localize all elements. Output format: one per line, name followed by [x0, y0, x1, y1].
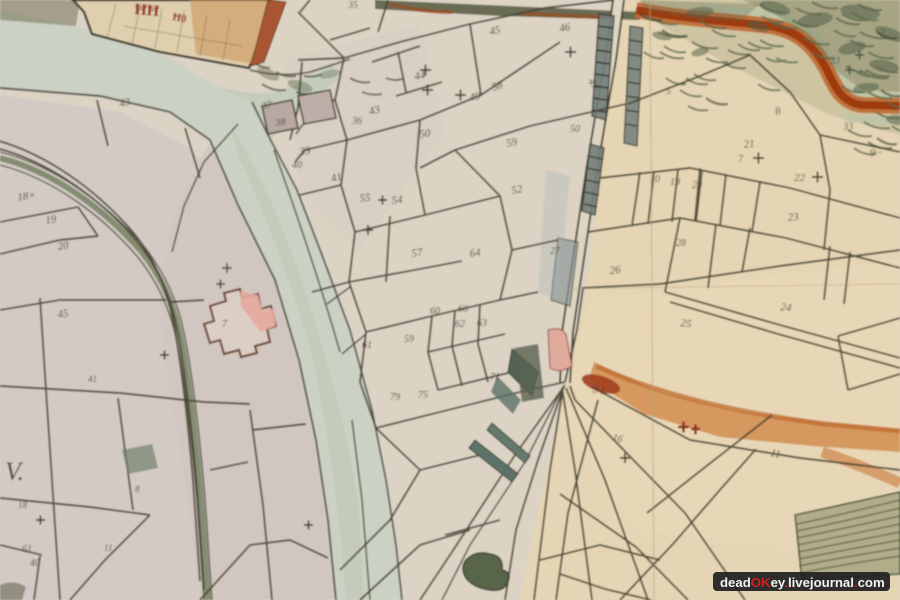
- svg-text:45: 45: [57, 307, 70, 320]
- svg-text:61: 61: [22, 544, 32, 555]
- svg-text:64: 64: [469, 246, 482, 259]
- svg-text:66: 66: [458, 304, 468, 315]
- svg-text:11: 11: [104, 543, 112, 553]
- svg-text:28: 28: [676, 238, 686, 249]
- svg-text:36: 36: [351, 116, 362, 127]
- svg-text:Ħ0: Ħ0: [171, 11, 187, 25]
- svg-text:V.: V.: [5, 457, 24, 486]
- svg-text:50: 50: [570, 124, 580, 135]
- svg-text:23: 23: [787, 211, 800, 224]
- svg-text:20: 20: [692, 180, 702, 191]
- svg-text:35: 35: [347, 0, 358, 11]
- svg-text:11: 11: [769, 447, 781, 461]
- svg-text:21: 21: [743, 138, 755, 151]
- svg-text:55: 55: [359, 192, 372, 205]
- svg-text:40: 40: [292, 160, 302, 171]
- svg-text:57: 57: [411, 246, 424, 259]
- svg-text:18: 18: [18, 500, 28, 510]
- svg-text:deadOKey.livejournal.com: deadOKey.livejournal.com: [720, 575, 885, 590]
- svg-text:33: 33: [829, 56, 840, 67]
- svg-text:40: 40: [30, 558, 40, 569]
- svg-text:10: 10: [650, 174, 660, 185]
- svg-text:39: 39: [298, 144, 312, 158]
- svg-text:60: 60: [430, 306, 440, 317]
- svg-text:59: 59: [404, 334, 414, 345]
- svg-text:79: 79: [390, 392, 400, 403]
- svg-text:27: 27: [550, 246, 561, 257]
- svg-text:61: 61: [362, 340, 372, 351]
- svg-text:5: 5: [666, 86, 671, 97]
- svg-text:54: 54: [391, 194, 404, 207]
- svg-text:26: 26: [609, 264, 622, 277]
- svg-text:38: 38: [274, 117, 286, 129]
- svg-text:25: 25: [680, 317, 693, 330]
- svg-text:22: 22: [794, 172, 806, 184]
- svg-text:41: 41: [88, 374, 97, 384]
- svg-text:75: 75: [418, 390, 428, 401]
- svg-text:ĦĦ: ĦĦ: [134, 1, 161, 20]
- svg-text:8: 8: [135, 484, 140, 494]
- svg-text:19: 19: [670, 177, 680, 188]
- svg-text:63: 63: [477, 318, 487, 329]
- svg-text:33: 33: [842, 122, 853, 133]
- svg-text:9−: 9−: [870, 147, 883, 159]
- svg-text:62: 62: [455, 319, 465, 330]
- svg-text:2: 2: [880, 28, 885, 39]
- svg-text:71: 71: [490, 372, 500, 383]
- svg-text:20: 20: [57, 239, 70, 252]
- svg-text:24: 24: [780, 301, 793, 314]
